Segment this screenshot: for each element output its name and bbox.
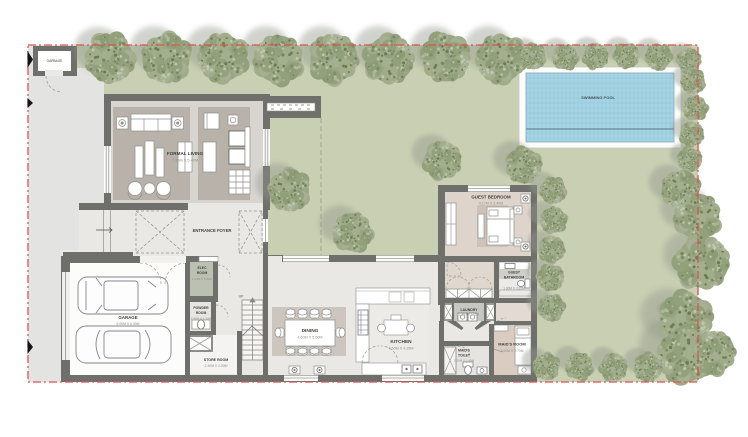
svg-text:ROOM: ROOM [196, 311, 207, 315]
svg-text:4.17M X 3.40M: 4.17M X 3.40M [479, 202, 503, 206]
svg-text:ELEC: ELEC [197, 266, 207, 270]
svg-text:7.35M X 5.40M: 7.35M X 5.40M [172, 158, 198, 163]
svg-text:GARBAGE: GARBAGE [47, 59, 63, 63]
svg-text:1.90M X 1.35M: 1.90M X 1.35M [459, 313, 480, 317]
svg-text:4.50M X 4.35M: 4.50M X 4.35M [388, 347, 413, 351]
svg-text:ENTRANCE FOYER: ENTRANCE FOYER [193, 228, 232, 233]
svg-text:FORMAL LIVING: FORMAL LIVING [167, 151, 204, 156]
svg-text:MAID'S ROOM: MAID'S ROOM [498, 342, 526, 347]
svg-text:1.20M X 1.60M: 1.20M X 1.60M [192, 277, 213, 281]
svg-text:BATHROOM: BATHROOM [504, 276, 524, 280]
svg-text:TOILET: TOILET [458, 354, 471, 358]
svg-text:4.60M X 5.60M: 4.60M X 5.60M [297, 336, 322, 340]
svg-text:1.90M X 3.25M: 1.90M X 3.25M [503, 287, 525, 291]
svg-text:STORE ROOM: STORE ROOM [204, 358, 229, 362]
svg-text:ROOM: ROOM [197, 271, 208, 275]
svg-text:SWIMMING POOL: SWIMMING POOL [581, 95, 615, 100]
svg-text:6.00M X 6.00M: 6.00M X 6.00M [117, 322, 140, 326]
svg-text:3.00M X 2.70M: 3.00M X 2.70M [501, 349, 524, 353]
svg-text:2.20M X 1.40M: 2.20M X 1.40M [454, 359, 475, 363]
svg-text:UP: UP [239, 295, 244, 299]
svg-text:POWDER: POWDER [193, 306, 209, 310]
svg-text:KITCHEN: KITCHEN [390, 339, 412, 345]
svg-text:GUEST BEDROOM: GUEST BEDROOM [471, 195, 511, 200]
svg-text:DINING: DINING [302, 328, 319, 334]
svg-text:GARAGE: GARAGE [118, 315, 137, 320]
svg-text:GUEST: GUEST [508, 271, 521, 275]
svg-text:MAID'S: MAID'S [458, 349, 470, 353]
svg-text:LAUNDRY: LAUNDRY [461, 308, 479, 312]
svg-text:2.40M X 2.00M: 2.40M X 2.00M [205, 364, 228, 368]
svg-text:2.40M X 1.30M: 2.40M X 1.30M [191, 317, 212, 321]
